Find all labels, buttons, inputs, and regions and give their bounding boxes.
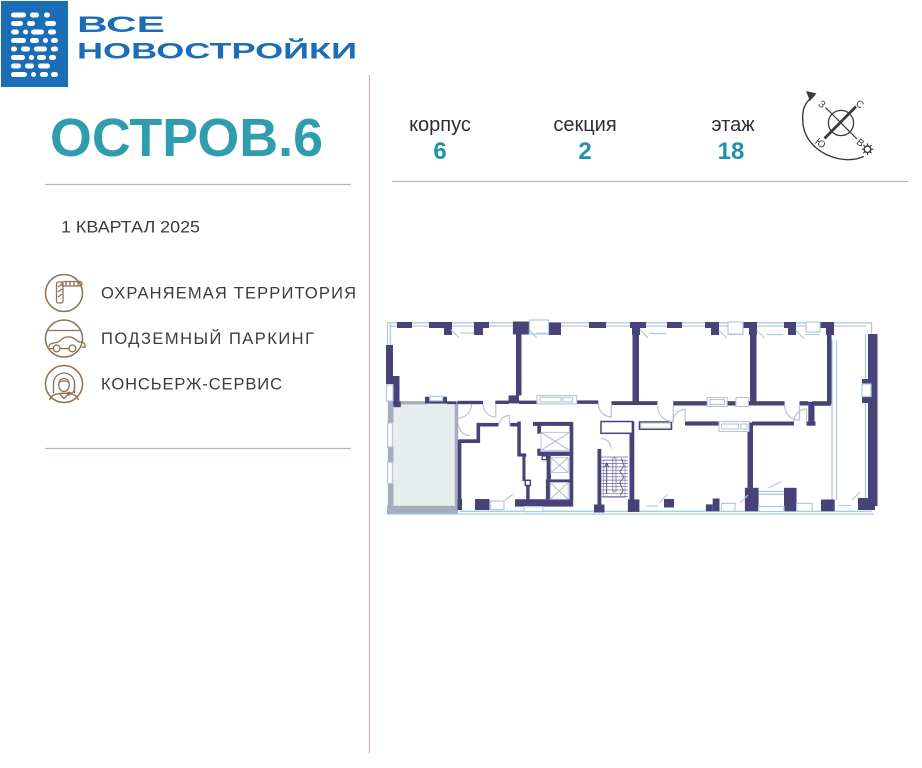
svg-text:ОХРАНЯЕМАЯ ТЕРРИТОРИЯ: ОХРАНЯЕМАЯ ТЕРРИТОРИЯ	[101, 285, 356, 303]
svg-text:ВСЕ: ВСЕ	[77, 12, 165, 37]
svg-text:2: 2	[578, 138, 591, 165]
svg-text:ОСТРОВ.6: ОСТРОВ.6	[50, 108, 323, 168]
svg-text:ПОДЗЕМНЫЙ ПАРКИНГ: ПОДЗЕМНЫЙ ПАРКИНГ	[101, 329, 314, 348]
svg-text:18: 18	[718, 138, 745, 165]
svg-text:6: 6	[433, 138, 446, 165]
svg-text:1 КВАРТАЛ 2025: 1 КВАРТАЛ 2025	[61, 219, 200, 237]
svg-text:этаж: этаж	[711, 114, 755, 136]
svg-text:секция: секция	[553, 114, 616, 136]
svg-text:корпус: корпус	[409, 114, 471, 136]
svg-text:КОНСЬЕРЖ-СЕРВИС: КОНСЬЕРЖ-СЕРВИС	[101, 376, 282, 394]
svg-text:НОВОСТРОЙКИ: НОВОСТРОЙКИ	[77, 39, 357, 64]
